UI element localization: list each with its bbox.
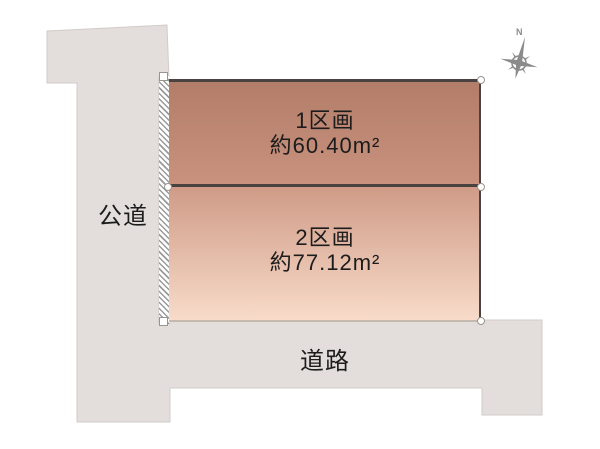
lot-1-name: 1区画 xyxy=(169,108,481,133)
front-road-label: 道路 xyxy=(169,341,481,376)
public-road-label: 公道 xyxy=(77,196,169,231)
lot-2-area: 約77.12m² xyxy=(169,250,481,275)
compass-icon xyxy=(489,29,549,97)
corner-marker xyxy=(164,183,172,191)
corner-marker xyxy=(477,317,485,325)
lot-2-name: 2区画 xyxy=(169,225,481,250)
compass-rose xyxy=(489,29,549,97)
lot-1-label: 1区画 約60.40m² xyxy=(169,108,481,158)
lot-layout-diagram: 1区画 約60.40m² 2区画 約77.12m² 公道 道路 N xyxy=(0,0,600,449)
corner-marker xyxy=(477,76,485,84)
corner-marker xyxy=(159,72,168,81)
lot-1-area: 約60.40m² xyxy=(169,133,481,158)
compass-north-label: N xyxy=(516,27,523,37)
lot-2-label: 2区画 約77.12m² xyxy=(169,225,481,275)
corner-marker xyxy=(477,183,485,191)
corner-marker xyxy=(159,317,168,326)
